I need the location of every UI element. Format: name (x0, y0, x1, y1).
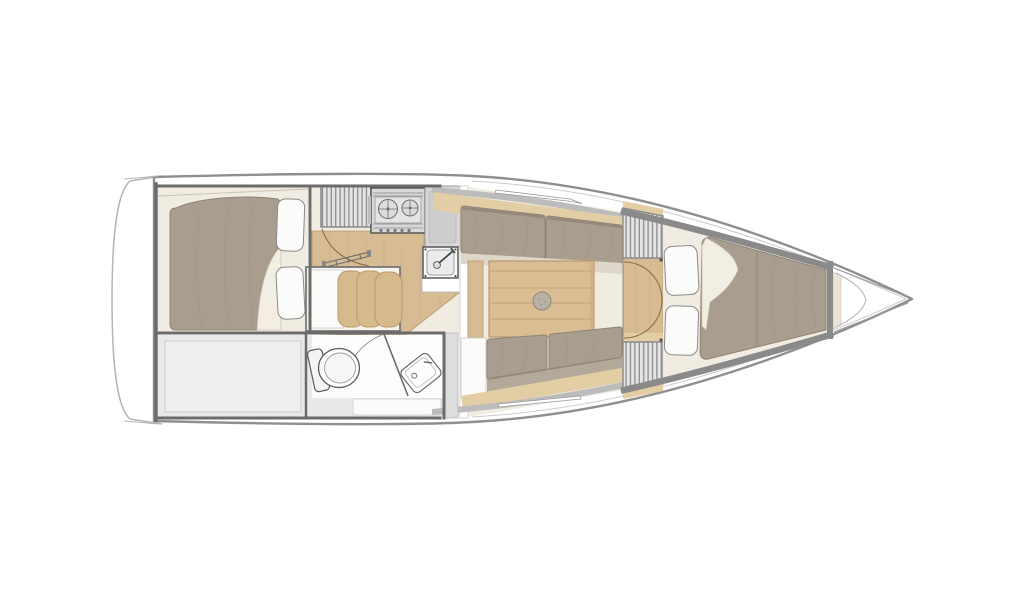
galley-stove (368, 188, 425, 233)
forward-bulkhead (623, 201, 663, 399)
sailboat-layout-diagram (0, 0, 1024, 600)
aft-berth-pillow-bottom (276, 266, 306, 319)
aft-berth-pillow-top (276, 199, 305, 252)
door-hinge (659, 258, 662, 261)
head-step (353, 399, 441, 415)
companionway-steps (321, 186, 371, 227)
table-center-fitting (533, 292, 551, 310)
wall-head-right-fill (444, 333, 458, 418)
saloon (432, 186, 624, 418)
settee-armrest-bottom (461, 338, 486, 396)
table-leaf (468, 261, 483, 339)
door-hinge (659, 338, 662, 341)
bulkhead-passage-sole (623, 256, 663, 344)
saloon-table (489, 261, 594, 337)
aft-cabin (158, 187, 308, 333)
stove-burner-right (402, 200, 418, 216)
stowage-inner-panel (165, 341, 301, 412)
bow-shelf-sliver (833, 272, 841, 329)
stove-handle (368, 196, 371, 224)
boat-floor-plan-canvas (0, 0, 1024, 600)
bench-seat (306, 267, 402, 331)
stove-burner-left (379, 200, 398, 219)
galley-sink (422, 247, 460, 292)
v-berth-pillow-bottom (664, 305, 699, 355)
seat-cushion (375, 272, 402, 327)
v-berth-pillow-top (664, 245, 700, 296)
